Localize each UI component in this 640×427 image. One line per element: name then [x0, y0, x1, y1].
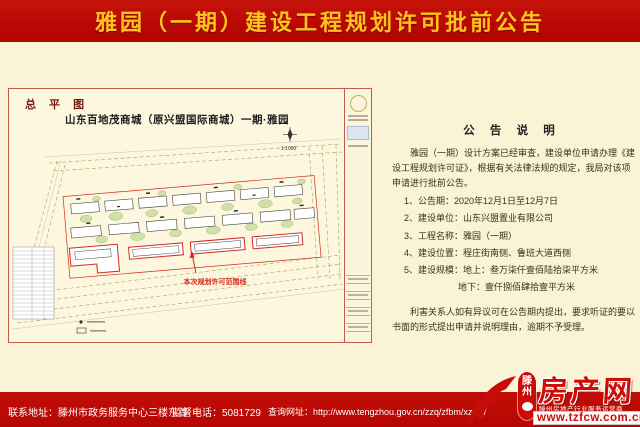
titleblock-cell: [346, 323, 370, 331]
titleblock-cell: [346, 331, 370, 339]
stamp-icon: [350, 95, 367, 112]
titleblock-textline: [348, 145, 368, 147]
plan-scale: 1:1000: [281, 146, 297, 152]
badge-oval-icon: [522, 402, 533, 411]
titleblock-textline: [348, 119, 368, 121]
titleblock-cell: [346, 315, 370, 323]
notice-item-4: 4、建设位置：程庄街南侧、鲁班大道西侧: [404, 246, 637, 261]
logo-swoosh-icon: [466, 371, 522, 425]
plan-legend: [77, 320, 106, 333]
supervision-phone: 监督电话：5081729: [172, 404, 261, 419]
titleblock-cell: [346, 291, 370, 299]
scope-annotation: 本次规划许可范围线: [183, 251, 247, 286]
notice-item-2: 2、建设单位：山东兴盟置业有限公司: [404, 211, 637, 226]
badge-char-teng: 滕: [522, 376, 532, 387]
badge-char-zhou: 州: [522, 387, 532, 398]
tzfcw-logo: 滕 州 房产网 滕州房地产行业服务运营商 www.tzfcw.com.cn: [466, 369, 640, 427]
notice-body: 雅园（一期）设计方案已经审查，建设单位申请办理《建设工程规划许可证》，根据有关法…: [392, 146, 637, 335]
titleblock-cell: [346, 275, 370, 283]
indicator-table: [13, 247, 54, 319]
site-group: [63, 176, 321, 279]
plan-title: 山东百地茂商城（原兴盟国际商城）一期·雅园: [9, 112, 345, 127]
north-arrow-icon: [283, 127, 297, 142]
plan-label: 总 平 图: [25, 96, 89, 112]
notice-item-1: 1、公告期：2020年12月1日至12月7日: [404, 194, 637, 209]
top-banner: 雅园（一期）建设工程规划许可批前公告: [0, 0, 640, 42]
titleblock-cell: [346, 283, 370, 291]
inquiry-website: 查询网址：http://www.tengzhou.gov.cn/zzq/zfbm…: [268, 405, 486, 418]
titleblock-cell: [346, 307, 370, 315]
notice-item-5-sub: 地下：壹仟捌佰肆拾壹平方米: [458, 280, 637, 295]
notice-item-3: 3、工程名称：雅园（一期）: [404, 229, 637, 244]
titleblock-cell: [346, 299, 370, 307]
logo-url: www.tzfcw.com.cn: [533, 411, 640, 425]
site-plan-sheet: 总 平 图 山东百地茂商城（原兴盟国际商城）一期·雅园: [8, 88, 372, 343]
site-plan-svg: 1:1000 本次规划许可范围线: [9, 127, 345, 342]
titleblock-textline: [348, 115, 368, 117]
notice-outro: 利害关系人如有异议可在公告期内提出，要求听证的要以书面的形式提出申请并说明理由，…: [392, 305, 637, 335]
page-title: 雅园（一期）建设工程规划许可批前公告: [95, 5, 545, 37]
scope-annotation-label: 本次规划许可范围线: [183, 277, 247, 286]
titleblock-stamp-area: [347, 126, 369, 140]
notice-item-5: 5、建设规模：地上：叁万柒仟壹佰陆拾柒平方米: [404, 263, 637, 278]
contact-address: 联系地址：滕州市政务服务中心三楼东首: [8, 404, 188, 419]
titleblock-grid: [345, 275, 371, 339]
notice-title: 公 告 说 明: [392, 122, 632, 138]
titleblock: [344, 89, 371, 342]
notice-intro: 雅园（一期）设计方案已经审查，建设单位申请办理《建设工程规划许可证》，根据有关法…: [392, 146, 637, 191]
